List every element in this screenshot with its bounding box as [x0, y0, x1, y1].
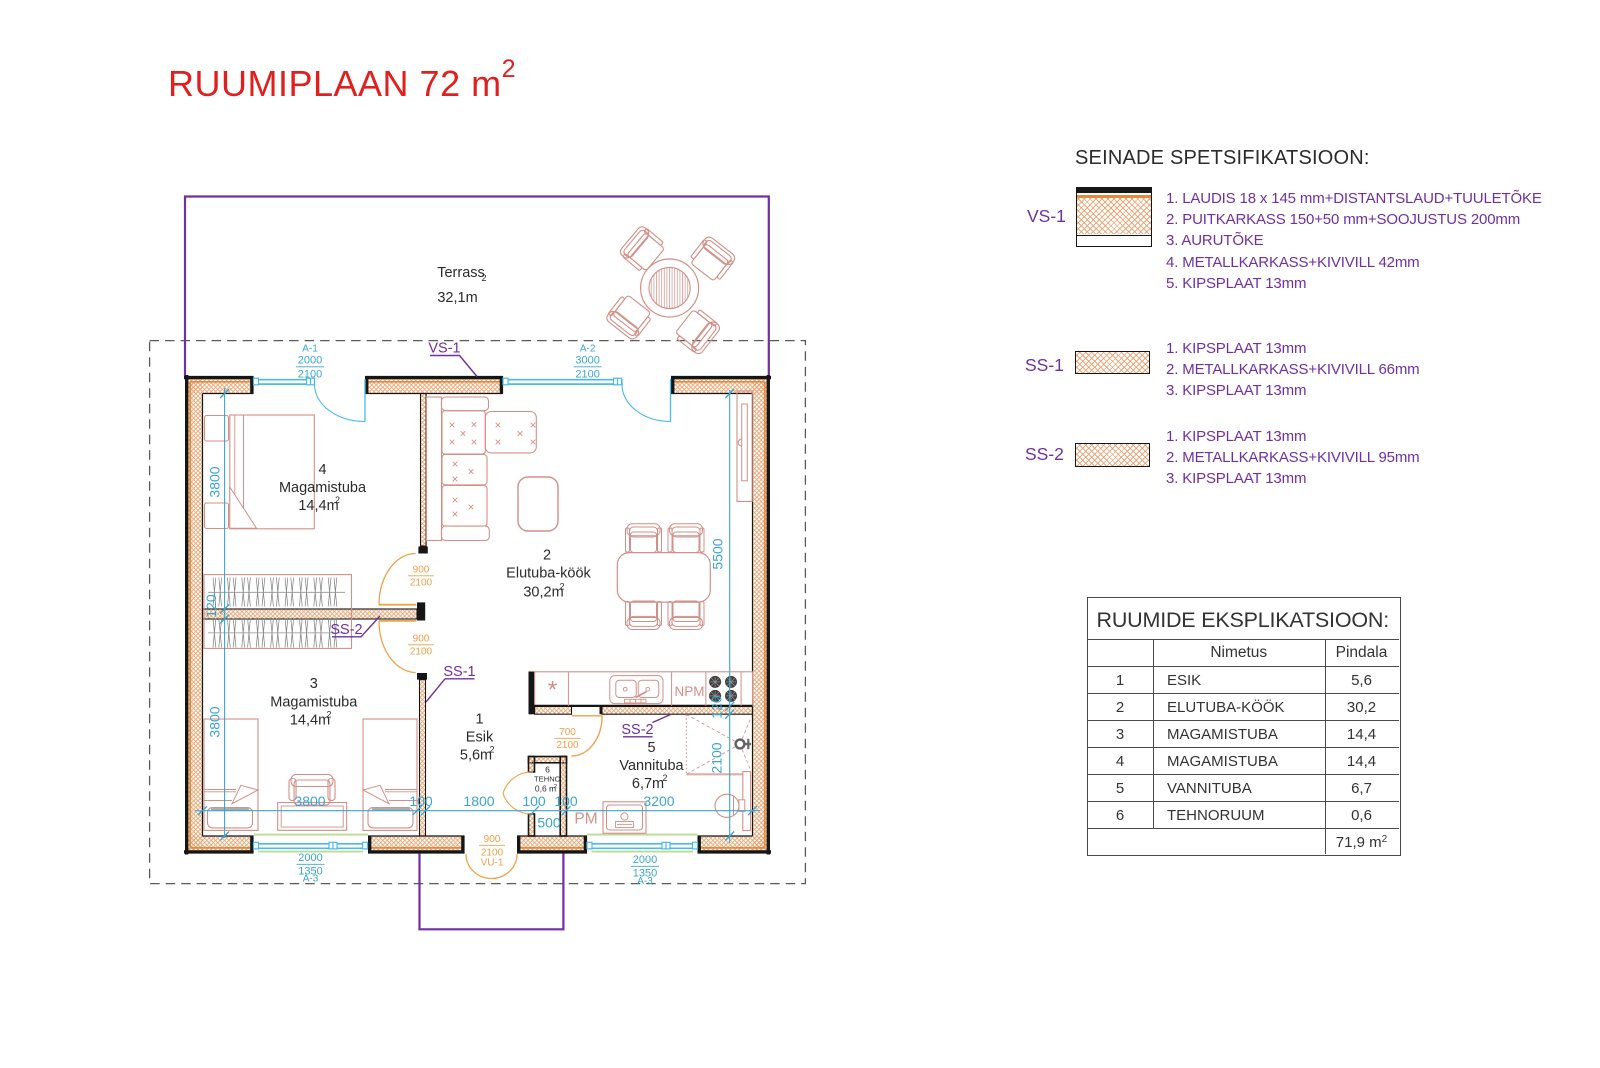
- svg-text:2: 2: [335, 495, 340, 505]
- svg-text:2100: 2100: [709, 742, 725, 773]
- svg-text:Terrass: Terrass: [437, 265, 485, 281]
- svg-text:6: 6: [545, 765, 550, 775]
- svg-text:2100: 2100: [298, 369, 322, 381]
- svg-text:2: 2: [559, 582, 564, 592]
- svg-text:100: 100: [409, 793, 433, 809]
- svg-text:900: 900: [484, 834, 501, 845]
- svg-text:3800: 3800: [294, 793, 325, 809]
- svg-text:2: 2: [554, 784, 557, 790]
- svg-text:3800: 3800: [207, 706, 223, 737]
- svg-text:5: 5: [647, 740, 655, 756]
- svg-text:2: 2: [543, 548, 551, 564]
- svg-text:3200: 3200: [643, 793, 674, 809]
- svg-text:2000: 2000: [298, 852, 322, 864]
- svg-text:900: 900: [413, 565, 430, 576]
- svg-text:Vannituba: Vannituba: [619, 758, 684, 774]
- svg-text:Magamistuba: Magamistuba: [270, 695, 358, 711]
- svg-text:2100: 2100: [556, 740, 579, 751]
- svg-text:5500: 5500: [710, 538, 726, 569]
- svg-text:2100: 2100: [410, 578, 433, 589]
- svg-text:NPM: NPM: [675, 684, 705, 699]
- svg-text:3: 3: [310, 676, 318, 692]
- svg-text:SS-2: SS-2: [330, 622, 362, 638]
- svg-text:2000: 2000: [298, 355, 322, 367]
- svg-text:100: 100: [554, 793, 578, 809]
- svg-text:2100: 2100: [410, 647, 433, 658]
- svg-text:120: 120: [709, 695, 725, 719]
- svg-text:A-2: A-2: [580, 344, 596, 355]
- svg-text:700: 700: [559, 727, 576, 738]
- svg-text:14,4m: 14,4m: [298, 498, 338, 514]
- svg-text:Magamistuba: Magamistuba: [279, 480, 367, 496]
- svg-text:2: 2: [662, 773, 667, 783]
- svg-text:32,1m: 32,1m: [437, 290, 477, 306]
- svg-text:6,7m: 6,7m: [632, 776, 664, 792]
- svg-text:2: 2: [326, 710, 331, 720]
- svg-text:2000: 2000: [633, 854, 657, 866]
- svg-text:14,4m: 14,4m: [290, 713, 330, 729]
- svg-text:500: 500: [537, 815, 561, 831]
- svg-text:SS-1: SS-1: [443, 664, 475, 680]
- svg-text:5,6m: 5,6m: [460, 748, 492, 764]
- svg-text:A-1: A-1: [302, 344, 318, 355]
- svg-text:VS-1: VS-1: [428, 341, 460, 357]
- svg-text:2: 2: [489, 745, 494, 755]
- svg-text:3000: 3000: [575, 355, 599, 367]
- svg-text:100: 100: [522, 793, 546, 809]
- svg-text:0,6 m: 0,6 m: [535, 784, 556, 794]
- svg-text:1: 1: [475, 712, 483, 728]
- svg-text:SS-2: SS-2: [621, 722, 653, 738]
- svg-text:120: 120: [203, 594, 219, 618]
- svg-text:Esik: Esik: [466, 730, 494, 746]
- svg-text:30,2m: 30,2m: [523, 585, 563, 601]
- svg-text:PM: PM: [574, 811, 597, 828]
- svg-text:TEHNO: TEHNO: [534, 775, 561, 784]
- svg-text:3800: 3800: [207, 466, 223, 497]
- svg-text:A-3: A-3: [637, 876, 653, 887]
- svg-text:*: *: [548, 677, 557, 704]
- svg-text:4: 4: [318, 462, 326, 478]
- svg-text:900: 900: [413, 634, 430, 645]
- svg-text:1800: 1800: [463, 793, 494, 809]
- svg-text:A-3: A-3: [303, 874, 319, 885]
- svg-text:2100: 2100: [575, 369, 599, 381]
- svg-text:2: 2: [481, 273, 486, 283]
- svg-text:VU-1: VU-1: [481, 858, 504, 869]
- svg-text:Elutuba-köök: Elutuba-köök: [506, 566, 591, 582]
